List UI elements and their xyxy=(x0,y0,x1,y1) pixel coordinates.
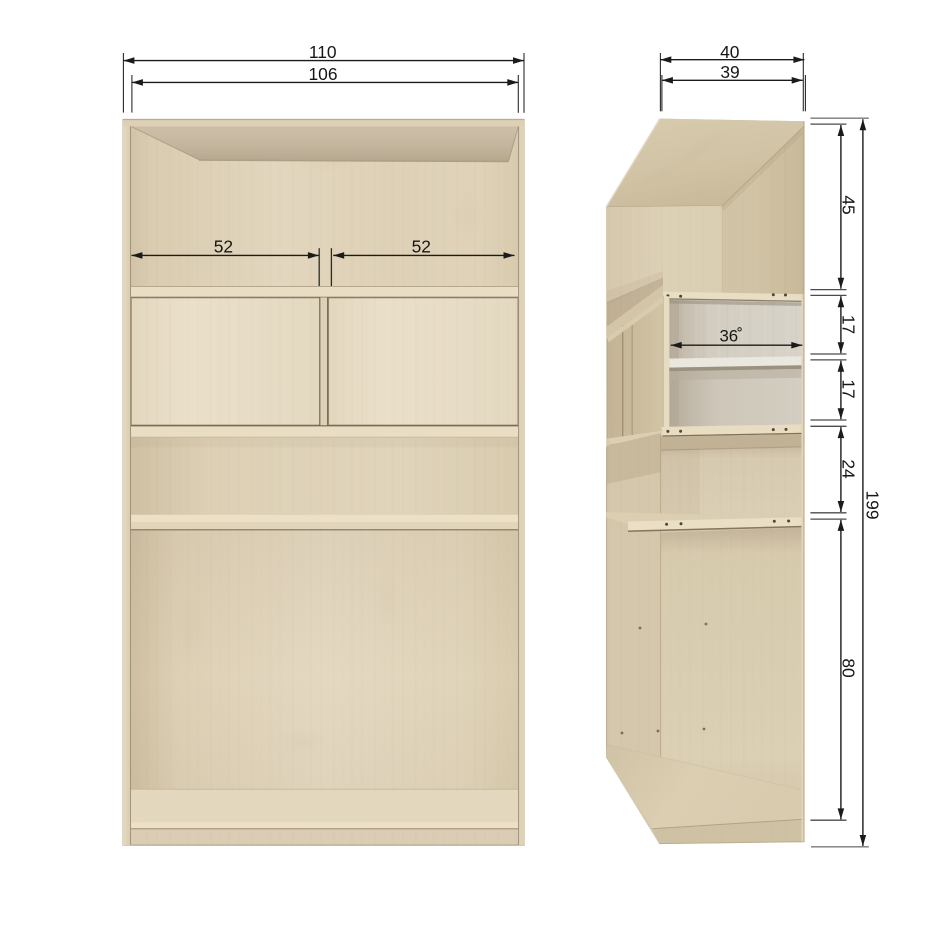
svg-text:52: 52 xyxy=(214,236,233,256)
svg-text:39: 39 xyxy=(720,62,739,82)
svg-text:80: 80 xyxy=(839,658,859,677)
svg-text:110: 110 xyxy=(309,42,337,62)
svg-text:106: 106 xyxy=(308,64,337,84)
svg-text:24: 24 xyxy=(839,459,859,479)
svg-text:45: 45 xyxy=(839,195,859,214)
svg-text:40: 40 xyxy=(720,42,739,62)
svg-text:36: 36 xyxy=(719,326,738,345)
svg-text:17: 17 xyxy=(839,379,859,398)
svg-text:17: 17 xyxy=(839,315,859,334)
svg-text:199: 199 xyxy=(863,490,883,519)
svg-text:52: 52 xyxy=(412,236,431,256)
